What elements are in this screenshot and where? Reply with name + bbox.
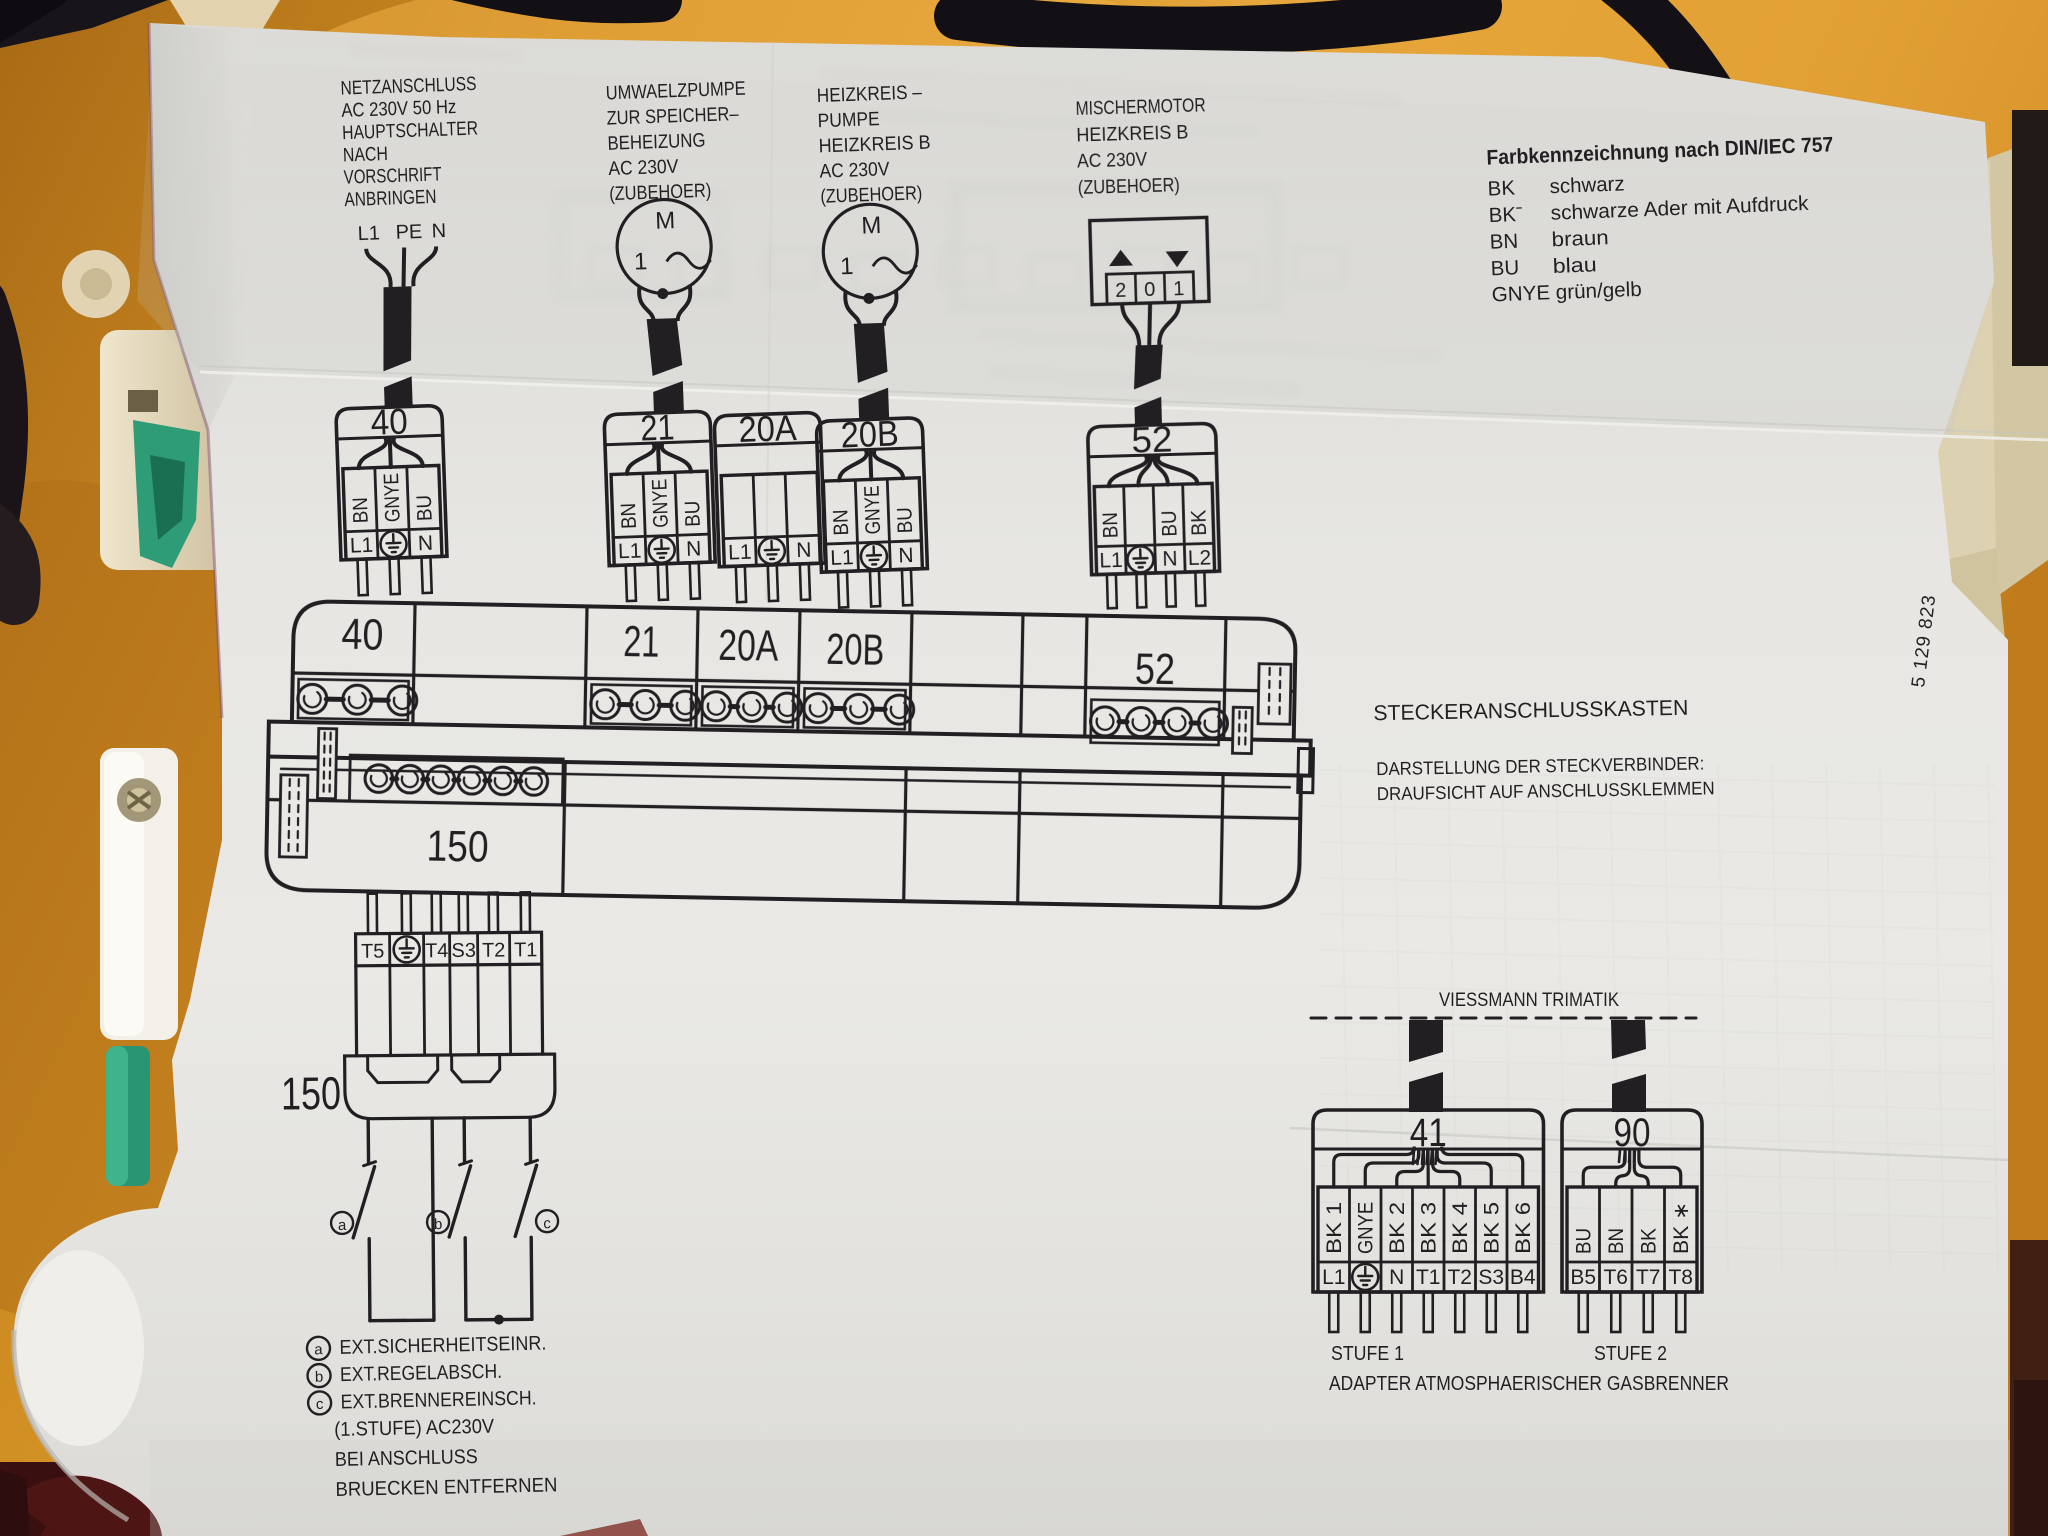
svg-text:1: 1	[633, 248, 647, 275]
svg-text:blau: blau	[1552, 253, 1597, 278]
svg-text:S3: S3	[1478, 1266, 1504, 1289]
svg-text:ADAPTER ATMOSPHAERISCHER GASBR: ADAPTER ATMOSPHAERISCHER GASBRENNER	[1329, 1372, 1729, 1395]
svg-text:T6: T6	[1603, 1266, 1628, 1289]
svg-text:AC 230V: AC 230V	[608, 156, 679, 180]
svg-text:GNYE: GNYE	[860, 485, 885, 535]
svg-text:150: 150	[281, 1067, 341, 1120]
svg-text:c: c	[316, 1396, 324, 1413]
svg-text:MISCHERMOTOR: MISCHERMOTOR	[1075, 94, 1206, 120]
svg-text:EXT.BRENNEREINSCH.: EXT.BRENNEREINSCH.	[340, 1387, 536, 1413]
svg-text:L2: L2	[1187, 546, 1211, 570]
svg-text:N: N	[898, 544, 914, 568]
svg-text:GNYE: GNYE	[648, 478, 673, 528]
svg-text:N: N	[431, 220, 446, 242]
svg-text:B4: B4	[1510, 1266, 1536, 1289]
svg-text:BK 5: BK 5	[1480, 1202, 1503, 1254]
svg-text:L1: L1	[1099, 549, 1123, 573]
svg-text:braun: braun	[1551, 226, 1609, 251]
svg-text:M: M	[861, 212, 882, 240]
svg-text:L1: L1	[728, 541, 752, 565]
svg-text:EXT.REGELABSCH.: EXT.REGELABSCH.	[340, 1361, 502, 1386]
svg-text:40: 40	[370, 401, 408, 443]
svg-text:B5: B5	[1570, 1266, 1596, 1289]
svg-text:HEIZKREIS B: HEIZKREIS B	[818, 132, 931, 158]
svg-text:HEIZKREIS –: HEIZKREIS –	[816, 81, 922, 107]
svg-text:N: N	[418, 532, 434, 556]
svg-text:21: 21	[623, 617, 660, 667]
svg-text:N: N	[796, 539, 812, 563]
svg-text:EXT.SICHERHEITSEINR.: EXT.SICHERHEITSEINR.	[339, 1333, 546, 1359]
svg-text:T2: T2	[1447, 1266, 1472, 1289]
svg-text:VIESSMANN TRIMATIK: VIESSMANN TRIMATIK	[1439, 989, 1619, 1011]
svg-text:BK 3: BK 3	[1417, 1202, 1440, 1254]
svg-text:T5: T5	[361, 941, 385, 963]
svg-text:AC 230V: AC 230V	[819, 158, 890, 182]
svg-text:BK 1: BK 1	[1323, 1202, 1346, 1254]
svg-text:N: N	[1162, 547, 1178, 570]
svg-text:1: 1	[1173, 278, 1185, 300]
svg-text:BU: BU	[1158, 510, 1182, 537]
svg-text:BEI ANSCHLUSS: BEI ANSCHLUSS	[335, 1446, 478, 1471]
svg-text:52: 52	[1135, 644, 1176, 694]
svg-text:BK 4: BK 4	[1449, 1202, 1472, 1254]
svg-text:BK: BK	[1187, 509, 1211, 536]
svg-text:VORSCHRIFT: VORSCHRIFT	[343, 163, 442, 188]
svg-text:ANBRINGEN: ANBRINGEN	[344, 186, 437, 211]
svg-text:T1: T1	[1416, 1266, 1441, 1289]
svg-text:21: 21	[640, 406, 675, 448]
svg-text:L1: L1	[618, 540, 642, 564]
svg-text:BN: BN	[617, 503, 641, 530]
svg-text:STUFE 2: STUFE 2	[1594, 1343, 1667, 1365]
svg-text:BN: BN	[1099, 512, 1123, 539]
svg-text:L1: L1	[830, 546, 854, 570]
svg-text:BK 2: BK 2	[1386, 1202, 1409, 1254]
svg-text:BN: BN	[1605, 1228, 1628, 1254]
svg-text:N: N	[1389, 1266, 1404, 1289]
svg-text:(ZUBEHOER): (ZUBEHOER)	[609, 180, 712, 206]
svg-text:b: b	[315, 1369, 324, 1386]
svg-text:BU: BU	[1572, 1228, 1595, 1254]
svg-text:BK ∗: BK ∗	[1670, 1202, 1693, 1254]
svg-text:M: M	[655, 207, 676, 235]
svg-text:20B: 20B	[840, 412, 899, 455]
svg-text:BN: BN	[349, 497, 373, 524]
svg-text:schwarz: schwarz	[1549, 172, 1625, 198]
svg-text:T8: T8	[1668, 1266, 1693, 1289]
svg-text:BK 6: BK 6	[1512, 1202, 1535, 1254]
svg-text:b: b	[434, 1216, 442, 1233]
svg-text:L1: L1	[357, 222, 380, 245]
svg-text:T4: T4	[425, 940, 449, 962]
svg-text:AC 230V: AC 230V	[1077, 149, 1148, 173]
svg-text:HEIZKREIS B: HEIZKREIS B	[1076, 121, 1189, 146]
svg-text:150: 150	[426, 821, 489, 871]
svg-text:L1: L1	[349, 534, 373, 558]
svg-text:BU: BU	[1490, 256, 1519, 280]
svg-text:T7: T7	[1636, 1266, 1661, 1289]
svg-text:(ZUBEHOER): (ZUBEHOER)	[1078, 174, 1181, 199]
svg-text:(1.STUFE) AC230V: (1.STUFE) AC230V	[334, 1416, 495, 1441]
svg-text:BU: BU	[413, 495, 437, 522]
svg-text:S3: S3	[451, 940, 476, 962]
svg-text:PE: PE	[395, 221, 422, 244]
svg-text:BKˉ: BKˉ	[1488, 203, 1523, 227]
svg-text:PUMPE: PUMPE	[817, 108, 880, 132]
svg-text:BEHEIZUNG: BEHEIZUNG	[607, 129, 706, 154]
svg-text:L1: L1	[1322, 1266, 1345, 1289]
svg-text:BK: BK	[1637, 1228, 1660, 1254]
svg-text:STUFE 1: STUFE 1	[1331, 1343, 1404, 1365]
svg-text:BU: BU	[893, 507, 917, 534]
svg-text:52: 52	[1131, 418, 1173, 460]
svg-text:GNYE: GNYE	[1354, 1202, 1377, 1254]
svg-text:T1: T1	[514, 939, 538, 961]
svg-text:T2: T2	[482, 940, 506, 962]
svg-text:BU: BU	[681, 500, 705, 527]
svg-text:20B: 20B	[826, 625, 885, 675]
svg-text:40: 40	[341, 610, 384, 660]
svg-text:20A: 20A	[738, 407, 797, 450]
svg-text:2: 2	[1115, 280, 1127, 302]
svg-text:90: 90	[1614, 1111, 1651, 1155]
svg-text:NACH: NACH	[343, 143, 389, 167]
svg-text:BN: BN	[1489, 230, 1518, 254]
svg-text:BRUECKEN ENTFERNEN: BRUECKEN ENTFERNEN	[335, 1474, 557, 1501]
svg-text:a: a	[338, 1217, 347, 1234]
svg-text:BN: BN	[829, 509, 853, 536]
svg-text:GNYE: GNYE	[380, 473, 405, 523]
svg-text:1: 1	[840, 253, 854, 280]
svg-text:N: N	[686, 537, 702, 561]
svg-text:a: a	[314, 1341, 323, 1358]
svg-text:c: c	[543, 1215, 551, 1232]
svg-text:0: 0	[1144, 279, 1156, 301]
svg-text:ZUR SPEICHER–: ZUR SPEICHER–	[606, 103, 739, 130]
svg-text:20A: 20A	[718, 621, 779, 671]
svg-text:BK: BK	[1487, 177, 1516, 201]
